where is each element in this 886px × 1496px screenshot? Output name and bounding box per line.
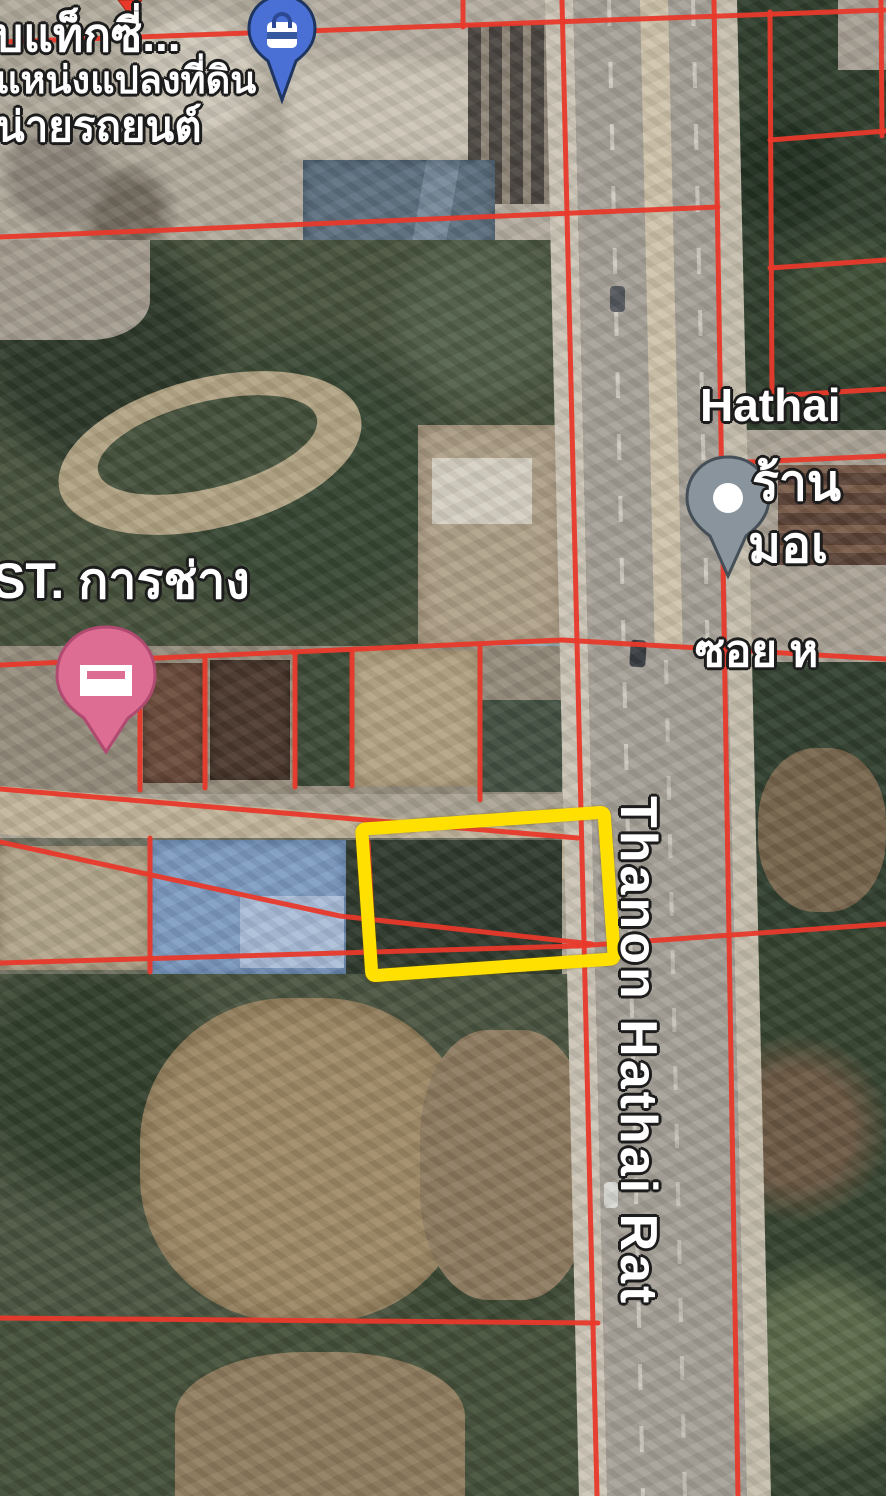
street-label-soi[interactable]: ซอย ห (695, 630, 818, 674)
poi-label-shop-line1[interactable]: ร้าน (752, 458, 841, 508)
road-label-thanon-hathai-rat: Thanon Hathai Rat (612, 796, 664, 1436)
street-label-hathai[interactable]: Hathai (700, 382, 841, 428)
satellite-map[interactable]: บแท็กซี่... แหน่งแปลงที่ดิน น่ายรถยนต์ S… (0, 0, 886, 1496)
bed-icon (80, 665, 132, 696)
poi-label-car-sales[interactable]: น่ายรถยนต์ (0, 106, 202, 148)
lodging-pin[interactable] (52, 624, 160, 756)
poi-label-taxi[interactable]: บแท็กซี่... (0, 12, 181, 58)
poi-label-land-plot[interactable]: แหน่งแปลงที่ดิน (0, 62, 256, 100)
poi-label-st-garage[interactable]: ST. การช่าง (0, 556, 250, 606)
highlighted-plot-outline (355, 805, 622, 982)
dot-icon (713, 483, 743, 513)
poi-label-shop-line2[interactable]: มอเ (748, 520, 828, 570)
